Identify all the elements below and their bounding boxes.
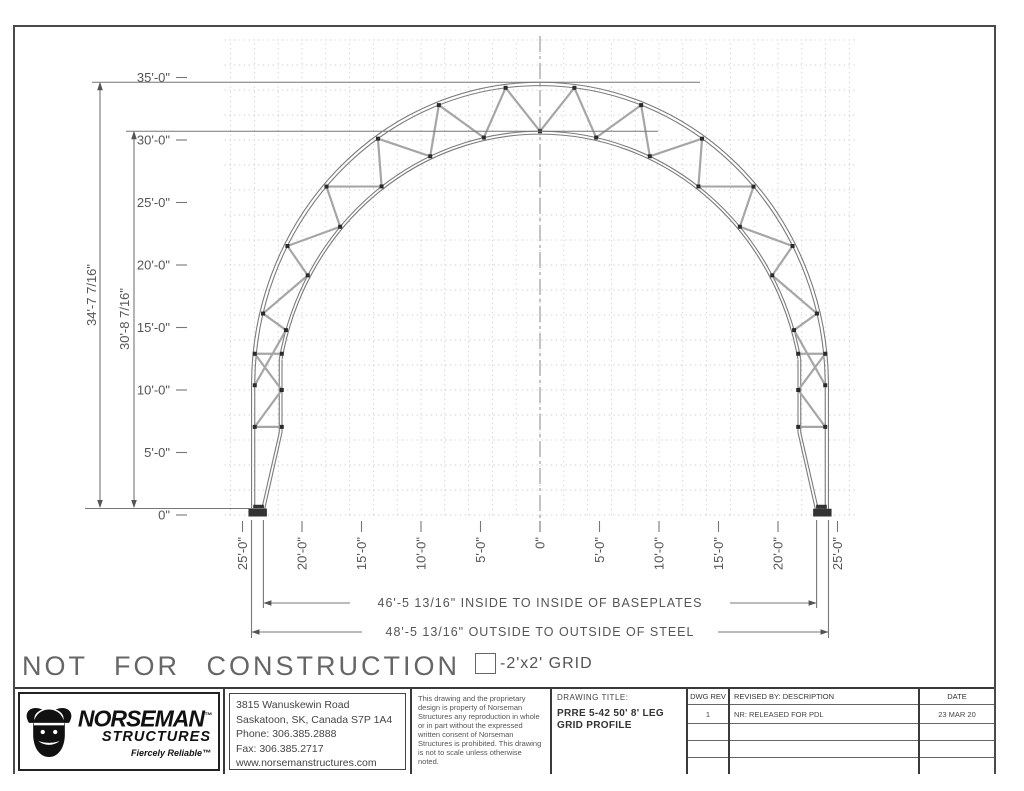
svg-text:20'-0": 20'-0" [137,258,171,273]
drawing-title-label: DRAWING TITLE: [557,693,681,702]
revised-by-header: REVISED BY: DESCRIPTION [730,689,918,705]
viking-head-icon [24,704,74,760]
svg-text:25'-0": 25'-0" [137,195,171,210]
svg-text:15'-0": 15'-0" [711,537,726,571]
svg-text:25'-0": 25'-0" [235,537,250,571]
grid-swatch-icon [475,653,496,674]
svg-text:15'-0": 15'-0" [354,537,369,571]
fax-line: Fax: 306.385.2717 [236,742,399,757]
svg-text:15'-0": 15'-0" [137,320,171,335]
svg-text:25'-0": 25'-0" [830,537,845,571]
dwg-rev-column: DWG REV 1 [688,689,730,774]
svg-text:30'-0": 30'-0" [137,133,171,148]
footer-note-row: NOT FOR CONSTRUCTION -2'x2' GRID [20,651,996,685]
drawing-sheet: 34'-7 7/16" 30'-8 7/16" 46'-5 13/16" INS… [0,0,1024,791]
brand-sub: STRUCTURES [74,730,211,745]
svg-text:20'-0": 20'-0" [771,537,786,571]
date-header: DATE [920,689,994,705]
brand-tagline: Fiercely Reliable™ [74,748,211,758]
revision-description: NR: RELEASED FOR PDL [730,705,918,724]
svg-text:10'-0": 10'-0" [652,537,667,571]
date-column: DATE 23 MAR 20 [920,689,994,774]
svg-text:10'-0": 10'-0" [137,383,171,398]
drawing-title-line2: GRID PROFILE [557,720,681,732]
dwg-rev-header: DWG REV [688,689,728,705]
drawing-title-cell: DRAWING TITLE: PRRE 5-42 50' 8' LEG GRID… [552,689,688,774]
dim-inside-baseplates-label: 46'-5 13/16" INSIDE TO INSIDE OF BASEPLA… [378,596,703,610]
brand-name: NORSEMAN™ [74,705,211,730]
svg-text:5'-0": 5'-0" [144,445,170,460]
dim-inner-height-label: 30'-8 7/16" [117,288,132,350]
not-for-construction-text: NOT FOR CONSTRUCTION [22,651,460,682]
drawing-title-line1: PRRE 5-42 50' 8' LEG [557,708,681,720]
dim-outer-height-label: 34'-7 7/16" [84,264,99,326]
grid-legend: -2'x2' GRID [475,653,593,674]
revision-description-column: REVISED BY: DESCRIPTION NR: RELEASED FOR… [730,689,920,774]
logo-cell: NORSEMAN™ STRUCTURES Fiercely Reliable™ [15,689,225,774]
title-block: NORSEMAN™ STRUCTURES Fiercely Reliable™ … [15,687,994,774]
svg-text:5'-0": 5'-0" [473,537,488,563]
svg-text:0": 0" [158,508,170,523]
grid-legend-label: -2'x2' GRID [500,655,593,673]
website-line: www.norsemanstructures.com [236,756,399,771]
svg-text:20'-0": 20'-0" [295,537,310,571]
disclaimer-text: This drawing and the proprietary design … [418,694,544,766]
address-cell: 3815 Wanuskewin Road Saskatoon, SK, Cana… [225,689,412,774]
profile-drawing: 34'-7 7/16" 30'-8 7/16" 46'-5 13/16" INS… [0,0,1024,650]
disclaimer-cell: This drawing and the proprietary design … [412,689,552,774]
phone-line: Phone: 306.385.2888 [236,727,399,742]
dim-outside-steel-label: 48'-5 13/16" OUTSIDE TO OUTSIDE OF STEEL [386,625,695,639]
svg-text:10'-0": 10'-0" [414,537,429,571]
address-line: Saskatoon, SK, Canada S7P 1A4 [236,713,399,728]
revision-date: 23 MAR 20 [920,705,994,724]
dwg-rev-value: 1 [688,705,728,724]
axis-ticks: 35'-0"30'-0"25'-0"20'-0"15'-0"10'-0"5'-0… [137,70,845,570]
svg-text:0": 0" [533,537,548,549]
address-line: 3815 Wanuskewin Road [236,698,399,713]
svg-text:5'-0": 5'-0" [592,537,607,563]
